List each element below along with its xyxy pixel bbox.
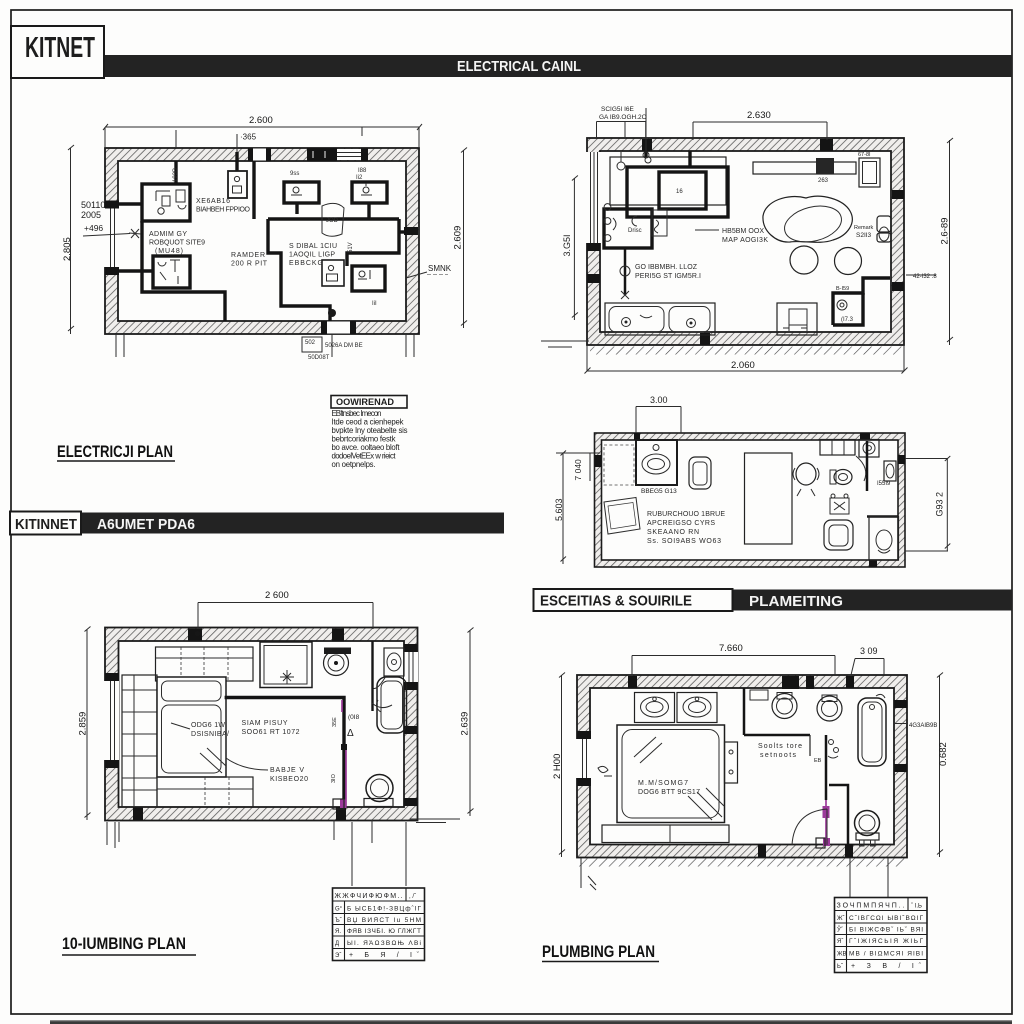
- svg-text:3 09: 3 09: [860, 646, 878, 656]
- svg-text:Ss. SOI9ABS WO63: Ss. SOI9ABS WO63: [647, 538, 721, 545]
- svg-text:2.060: 2.060: [731, 360, 755, 371]
- svg-text:5.603: 5.603: [554, 498, 564, 521]
- svg-text:2 H00: 2 H00: [552, 754, 563, 779]
- svg-text:7.660: 7.660: [719, 643, 743, 654]
- svg-text:Эˇ: Эˇ: [335, 953, 341, 959]
- svg-text:2.859: 2.859: [78, 712, 89, 736]
- svg-text:Б ЫСБ1Ф!-ЗВЦфˆIГ: Б ЫСБ1Ф!-ЗВЦфˆIГ: [347, 906, 421, 913]
- svg-text:OOWIRENAD: OOWIRENAD: [336, 397, 395, 407]
- svg-text:KITINNET: KITINNET: [15, 516, 77, 533]
- svg-text:S DIBAL 1CIU: S DIBAL 1CIU: [289, 243, 337, 250]
- svg-text:M.M/SOMG7: M.M/SOMG7: [638, 780, 688, 787]
- svg-text:G93 2: G93 2: [935, 492, 945, 517]
- svg-text:SCIG5I I6E: SCIG5I I6E: [601, 106, 635, 113]
- svg-text:Remark: Remark: [854, 225, 874, 231]
- svg-text:I55I9: I55I9: [877, 481, 891, 487]
- svg-text:Ўˇ: Ўˇ: [837, 926, 843, 934]
- svg-text:BBEG5 G13: BBEG5 G13: [641, 488, 677, 495]
- svg-text:KITNET: KITNET: [25, 32, 95, 64]
- svg-text:G°: G°: [335, 907, 343, 913]
- svg-text:RAMDER: RAMDER: [231, 252, 265, 259]
- svg-text:9ss: 9ss: [290, 171, 299, 177]
- svg-text:DOG6 BTT 9CS17: DOG6 BTT 9CS17: [638, 789, 700, 796]
- svg-text:Яˇ: Яˇ: [837, 939, 843, 945]
- svg-text:setnoots: setnoots: [760, 752, 797, 759]
- svg-text:·365: ·365: [240, 133, 257, 142]
- svg-text:, /ˇ: , /ˇ: [409, 894, 416, 900]
- svg-text:2.609: 2.609: [453, 226, 464, 250]
- svg-text:ЗОЧПМПЯЧП..: ЗОЧПМПЯЧП..: [837, 903, 905, 910]
- svg-text:IiI: IiI: [372, 301, 377, 307]
- svg-text:Soolts tore: Soolts tore: [758, 743, 802, 750]
- svg-text:ˇ I.Ь: ˇ I.Ь: [911, 904, 922, 910]
- svg-text:2.639: 2.639: [460, 712, 471, 736]
- svg-text:EB: EB: [814, 758, 822, 764]
- svg-text:50D08T: 50D08T: [308, 355, 330, 361]
- svg-text:СˆIВГСΩІ ЫВІˇВΩIГ: СˆIВГСΩІ ЫВІˇВΩIГ: [849, 915, 923, 922]
- svg-text:4G3AIB9B: 4G3AIB9B: [909, 723, 937, 729]
- svg-text:+ Б Я / Iˇ: + Б Я / Iˇ: [349, 952, 420, 959]
- svg-text:BABJE V: BABJE V: [270, 767, 304, 774]
- svg-text:PLAMEITING: PLAMEITING: [749, 593, 843, 610]
- svg-text:3IO: 3IO: [331, 773, 337, 783]
- svg-text:1AOQIL LIGP: 1AOQIL LIGP: [289, 252, 335, 259]
- svg-text:+496: +496: [84, 223, 103, 233]
- svg-text:(0I8: (0I8: [348, 714, 360, 721]
- svg-text:SMNK: SMNK: [428, 264, 452, 273]
- svg-text:I88: I88: [358, 168, 367, 174]
- svg-text:EBBCKG: EBBCKG: [289, 260, 323, 267]
- svg-text:502: 502: [305, 340, 316, 346]
- svg-text:10-IUMBING PLAN: 10-IUMBING PLAN: [62, 934, 186, 953]
- svg-text:PLUMBING PLAN: PLUMBING PLAN: [542, 942, 655, 961]
- svg-text:Δ: Δ: [347, 728, 354, 739]
- svg-text:B-I59: B-I59: [836, 286, 849, 292]
- svg-text:51V: 51V: [348, 242, 354, 253]
- svg-text:ELECTRICJI PLAN: ELECTRICJI PLAN: [57, 442, 173, 461]
- svg-text:GO IBBMBH. LLOZ: GO IBBMBH. LLOZ: [635, 264, 698, 271]
- svg-text:2005: 2005: [81, 210, 101, 220]
- svg-text:ROBQUOT SITE9: ROBQUOT SITE9: [149, 240, 205, 247]
- svg-text:SIAM PISUY: SIAM PISUY: [242, 720, 288, 727]
- svg-text:SOO61 RT 1072: SOO61 RT 1072: [242, 729, 300, 736]
- svg-text:SKEAANO RN: SKEAANO RN: [647, 529, 699, 536]
- svg-text:3.G5I: 3.G5I: [562, 234, 572, 256]
- svg-text:HB5BM OOX: HB5BM OOX: [722, 228, 764, 235]
- svg-text:on oetpnelps.: on oetpnelps.: [332, 460, 376, 469]
- svg-text:МВ / ВІΩМСЯІ ЯIВІ: МВ / ВІΩМСЯІ ЯIВІ: [849, 951, 923, 958]
- svg-text:ELECTRICAL CAINL: ELECTRICAL CAINL: [457, 58, 581, 75]
- svg-text:(I7.3: (I7.3: [841, 317, 854, 323]
- svg-text:БI ВІЖСФВˇ IЬˇ ВЯІ: БI ВІЖСФВˇ IЬˇ ВЯІ: [849, 927, 923, 934]
- svg-text:Ii2: Ii2: [356, 175, 363, 181]
- svg-text:ESCEITIAS & SOUIRILE: ESCEITIAS & SOUIRILE: [540, 594, 692, 610]
- svg-text:3.00: 3.00: [650, 395, 668, 405]
- svg-text:Я.: Я.: [335, 929, 341, 935]
- svg-text:193B: 193B: [173, 168, 179, 182]
- svg-text:Д: Д: [335, 941, 339, 947]
- svg-text:Ьˇ: Ьˇ: [837, 964, 843, 970]
- svg-text:A6UMET PDA6: A6UMET PDA6: [97, 516, 195, 533]
- svg-text:S2II3: S2II3: [856, 232, 872, 239]
- svg-text:263: 263: [818, 178, 829, 184]
- svg-text:RUBURCHOUO 1BRUE: RUBURCHOUO 1BRUE: [647, 511, 725, 518]
- svg-text:ЖВ: ЖВ: [837, 952, 847, 958]
- svg-text:2.6-89: 2.6-89: [940, 218, 951, 245]
- svg-text:APCREIGSO CYRS: APCREIGSO CYRS: [647, 520, 715, 527]
- svg-text:GA IB9.OGH.2O: GA IB9.OGH.2O: [599, 114, 647, 121]
- svg-text:(MU48): (MU48): [155, 248, 183, 255]
- svg-text:ЖЖФЧИФЮФМ..: ЖЖФЧИФЮФМ..: [335, 893, 403, 900]
- svg-text:2 600: 2 600: [265, 590, 289, 601]
- svg-text:DSISNIBA/: DSISNIBA/: [191, 731, 229, 738]
- svg-text:JOD: JOD: [326, 218, 339, 224]
- svg-text:35E: 35E: [332, 717, 338, 727]
- svg-text:50110: 50110: [81, 200, 105, 210]
- svg-text:2.600: 2.600: [249, 115, 273, 126]
- svg-text:16: 16: [676, 189, 683, 195]
- svg-text:KISBEO20: KISBEO20: [270, 776, 308, 783]
- svg-text:+ З В / Iˆ: + З В / Iˆ: [851, 963, 922, 970]
- svg-text:Ъˇ: Ъˇ: [335, 918, 342, 924]
- svg-text:ЫІ. ЯΆΩЗВΩЊ ΛВi: ЫІ. ЯΆΩЗВΩЊ ΛВi: [347, 940, 421, 947]
- svg-text:XE6AB16: XE6AB16: [196, 198, 230, 205]
- svg-text:MAP AOGI3K: MAP AOGI3K: [722, 237, 768, 244]
- svg-text:67-8I: 67-8I: [858, 152, 871, 158]
- svg-text:BIAHBEH FPPIOO: BIAHBEH FPPIOO: [196, 207, 251, 214]
- svg-text:Жˇ: Жˇ: [837, 916, 845, 922]
- svg-text:ODG6 1W: ODG6 1W: [191, 722, 225, 729]
- svg-text:PERI5G ST IGM5R.I: PERI5G ST IGM5R.I: [635, 273, 701, 280]
- svg-text:2.805: 2.805: [62, 237, 73, 261]
- svg-text:2.630: 2.630: [747, 110, 771, 121]
- svg-text:5026A DM BE: 5026A DM BE: [325, 343, 363, 349]
- svg-text:0.682: 0.682: [938, 742, 949, 766]
- svg-text:ФЯВ ІЗЧБІ. Ю ГЛЖГТ: ФЯВ ІЗЧБІ. Ю ГЛЖГТ: [347, 928, 421, 935]
- svg-text:Drisc: Drisc: [628, 228, 642, 234]
- svg-text:7 040: 7 040: [573, 459, 583, 481]
- svg-text:200 R PIT: 200 R PIT: [231, 261, 268, 268]
- svg-text:ADMIM GY: ADMIM GY: [149, 231, 187, 238]
